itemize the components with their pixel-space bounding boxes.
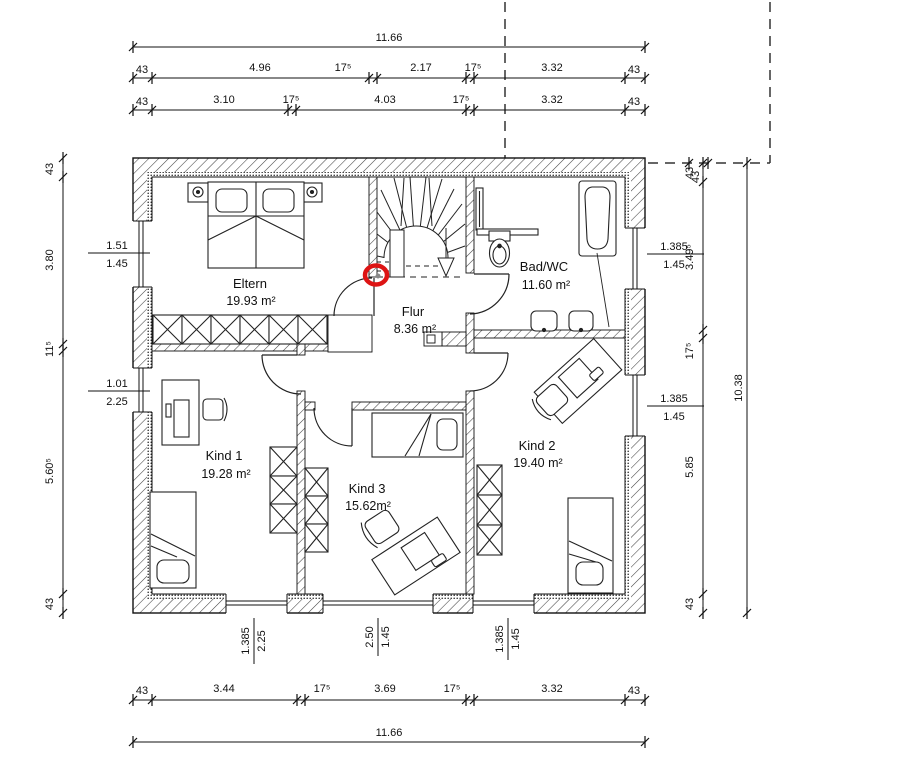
dim-label: 43 bbox=[628, 685, 640, 697]
dim-label: 17⁵ bbox=[283, 94, 300, 106]
dim-label: 3.69 bbox=[374, 683, 395, 695]
kind1-wardrobe-icon bbox=[270, 447, 297, 533]
dim-label: 3.32 bbox=[541, 62, 562, 74]
window-kind2-right bbox=[624, 375, 647, 436]
dim-label: 43 bbox=[684, 598, 696, 610]
dim-label: 17⁵ bbox=[444, 683, 461, 695]
kind2-bed-icon bbox=[568, 498, 613, 593]
room-name-kind3: Kind 3 bbox=[349, 481, 386, 496]
window-bad-right bbox=[624, 228, 647, 289]
dim-label: 11⁵ bbox=[44, 341, 56, 357]
radiator-icon bbox=[476, 188, 483, 230]
dim-label: 3.10 bbox=[213, 94, 234, 106]
room-name-bad: Bad/WC bbox=[520, 259, 568, 274]
window-dim: 1.51 bbox=[106, 240, 127, 252]
dim-label: 3.80 bbox=[44, 249, 56, 270]
door-bad-wc bbox=[470, 274, 509, 314]
room-area-kind1: 19.28 m² bbox=[201, 467, 250, 481]
eltern-double-bed-icon bbox=[188, 182, 322, 268]
kind1-desk-icon bbox=[162, 380, 227, 445]
sink-icon bbox=[531, 311, 593, 332]
stair-spine bbox=[390, 230, 404, 277]
dim-label: 5.85 bbox=[684, 456, 696, 477]
dim-label: 43 bbox=[44, 163, 56, 175]
duct-pier bbox=[328, 315, 372, 352]
window-dim: 1.01 bbox=[106, 378, 127, 390]
dim-label: 17⁵ bbox=[684, 343, 696, 360]
dim-label: 5.60⁵ bbox=[44, 458, 56, 484]
window-dim: 1.385 bbox=[494, 625, 506, 653]
window-kind2-bottom bbox=[473, 592, 534, 614]
floor-plan-page: Eltern 19.93 m² Flur 8.36 m² Bad/WC 11.6… bbox=[0, 0, 904, 777]
door-handle bbox=[376, 274, 381, 279]
room-name-eltern: Eltern bbox=[233, 276, 267, 291]
toilet-icon bbox=[489, 231, 510, 267]
roof-slope-line bbox=[597, 253, 609, 327]
dim-total-right: 10.38 bbox=[733, 374, 745, 402]
dim-label: 17⁵ bbox=[453, 94, 470, 106]
window-dim: 1.45 bbox=[106, 258, 127, 270]
window-dim: 1.385 bbox=[660, 393, 688, 405]
room-area-bad: 11.60 m² bbox=[522, 278, 570, 292]
kind2-wardrobe-icon bbox=[477, 465, 502, 555]
window-dim: 2.25 bbox=[256, 630, 268, 651]
dim-label: 4.96 bbox=[249, 62, 270, 74]
window-kind1-bottom bbox=[226, 592, 287, 614]
window-dim: 1.45 bbox=[663, 259, 684, 271]
door-kind2 bbox=[470, 353, 508, 391]
dim-label: 17⁵ bbox=[335, 62, 352, 74]
furniture bbox=[150, 181, 622, 595]
dim-total-top: 11.66 bbox=[376, 32, 403, 44]
room-area-kind2: 19.40 m² bbox=[513, 456, 562, 470]
room-name-flur: Flur bbox=[402, 304, 425, 319]
room-area-flur: 8.36 m² bbox=[394, 322, 436, 336]
door-eltern[interactable] bbox=[334, 274, 381, 317]
window-dim: 1.45 bbox=[663, 411, 684, 423]
kind1-bed-icon bbox=[150, 492, 196, 588]
dim-label: 3.44 bbox=[213, 683, 234, 695]
dim-label: 43 bbox=[628, 64, 640, 76]
staircase bbox=[377, 177, 465, 290]
dim-label: 17⁵ bbox=[465, 62, 482, 74]
kind3-wardrobe-icon bbox=[305, 468, 328, 552]
room-labels: Eltern 19.93 m² Flur 8.36 m² Bad/WC 11.6… bbox=[201, 259, 570, 513]
dim-label: 2.17 bbox=[410, 62, 431, 74]
eltern-wardrobe-icon bbox=[153, 315, 327, 344]
window-dim: 2.25 bbox=[106, 396, 127, 408]
dim-label: 3.49⁵ bbox=[684, 244, 696, 270]
window-dim: 1.45 bbox=[510, 628, 522, 649]
window-kind1-left bbox=[131, 368, 153, 412]
window-kind3-bottom bbox=[323, 592, 433, 614]
dim-roof-offset: 43 bbox=[690, 171, 702, 183]
dim-label: 43 bbox=[628, 96, 640, 108]
window-eltern-left bbox=[131, 221, 153, 287]
door-kind1 bbox=[262, 355, 301, 394]
dim-label: 43 bbox=[44, 598, 56, 610]
dim-label: 17⁵ bbox=[314, 683, 331, 695]
bathtub-icon bbox=[579, 181, 616, 256]
dim-label: 3.32 bbox=[541, 94, 562, 106]
window-dim: 1.385 bbox=[240, 627, 252, 655]
room-name-kind1: Kind 1 bbox=[206, 448, 243, 463]
window-dim: 1.45 bbox=[380, 626, 392, 647]
dim-total-bottom: 11.66 bbox=[376, 727, 403, 739]
dim-label: 43 bbox=[136, 64, 148, 76]
window-dim: 2.50 bbox=[364, 626, 376, 647]
dim-label: 43 bbox=[136, 96, 148, 108]
dim-label: 4.03 bbox=[374, 94, 395, 106]
kind3-chair-icon bbox=[358, 507, 402, 550]
door-kind3 bbox=[314, 408, 352, 446]
room-name-kind2: Kind 2 bbox=[519, 438, 556, 453]
kind3-bed-icon bbox=[372, 413, 463, 457]
dashed-reference-lines bbox=[505, 2, 770, 163]
room-area-kind3: 15.62m² bbox=[345, 499, 391, 513]
room-area-eltern: 19.93 m² bbox=[226, 294, 275, 308]
dim-label: 3.32 bbox=[541, 683, 562, 695]
floor-plan-drawing: Eltern 19.93 m² Flur 8.36 m² Bad/WC 11.6… bbox=[0, 0, 904, 777]
dim-label: 43 bbox=[136, 685, 148, 697]
